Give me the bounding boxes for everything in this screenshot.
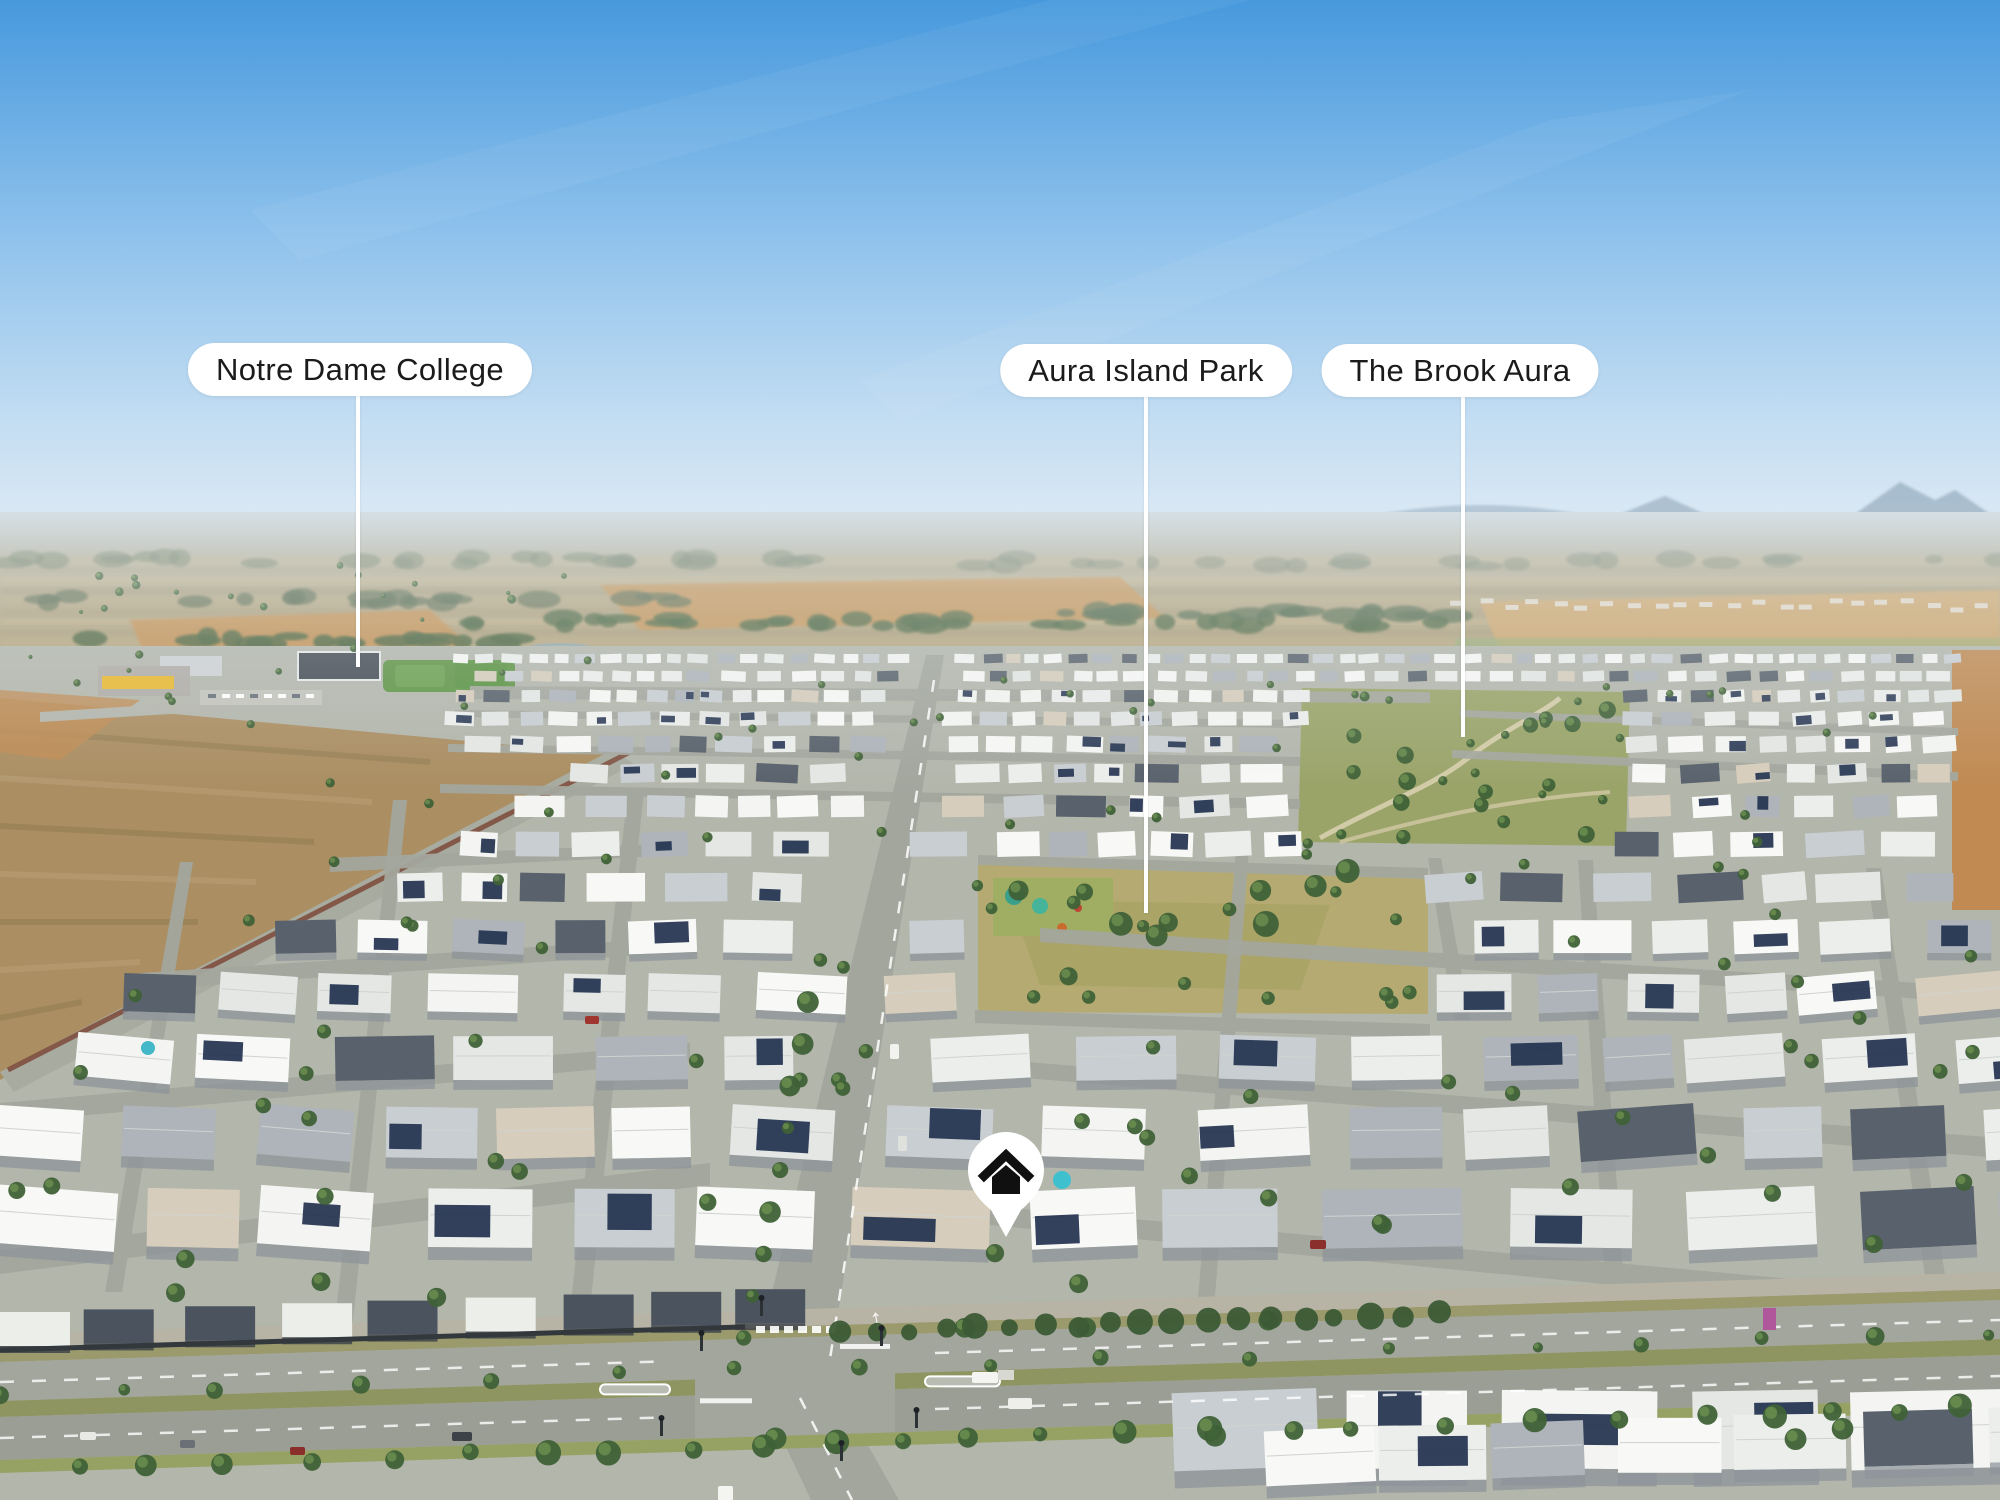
leader-line-notre-dame-college [356, 396, 360, 667]
aerial-photo-scene: ← [0, 0, 2000, 1500]
leader-line-the-brook-aura [1461, 397, 1465, 737]
atmospheric-haze [0, 512, 2000, 792]
location-pin [961, 1129, 1051, 1241]
leader-line-aura-island-park [1144, 397, 1148, 913]
callout-the-brook-aura: The Brook Aura [1322, 344, 1599, 397]
callout-notre-dame-college: Notre Dame College [188, 343, 532, 396]
callout-aura-island-park: Aura Island Park [1000, 344, 1292, 397]
sky [0, 0, 2000, 530]
aerial-photo: ← Notre Dame College Aura Island Park Th… [0, 0, 2000, 1500]
